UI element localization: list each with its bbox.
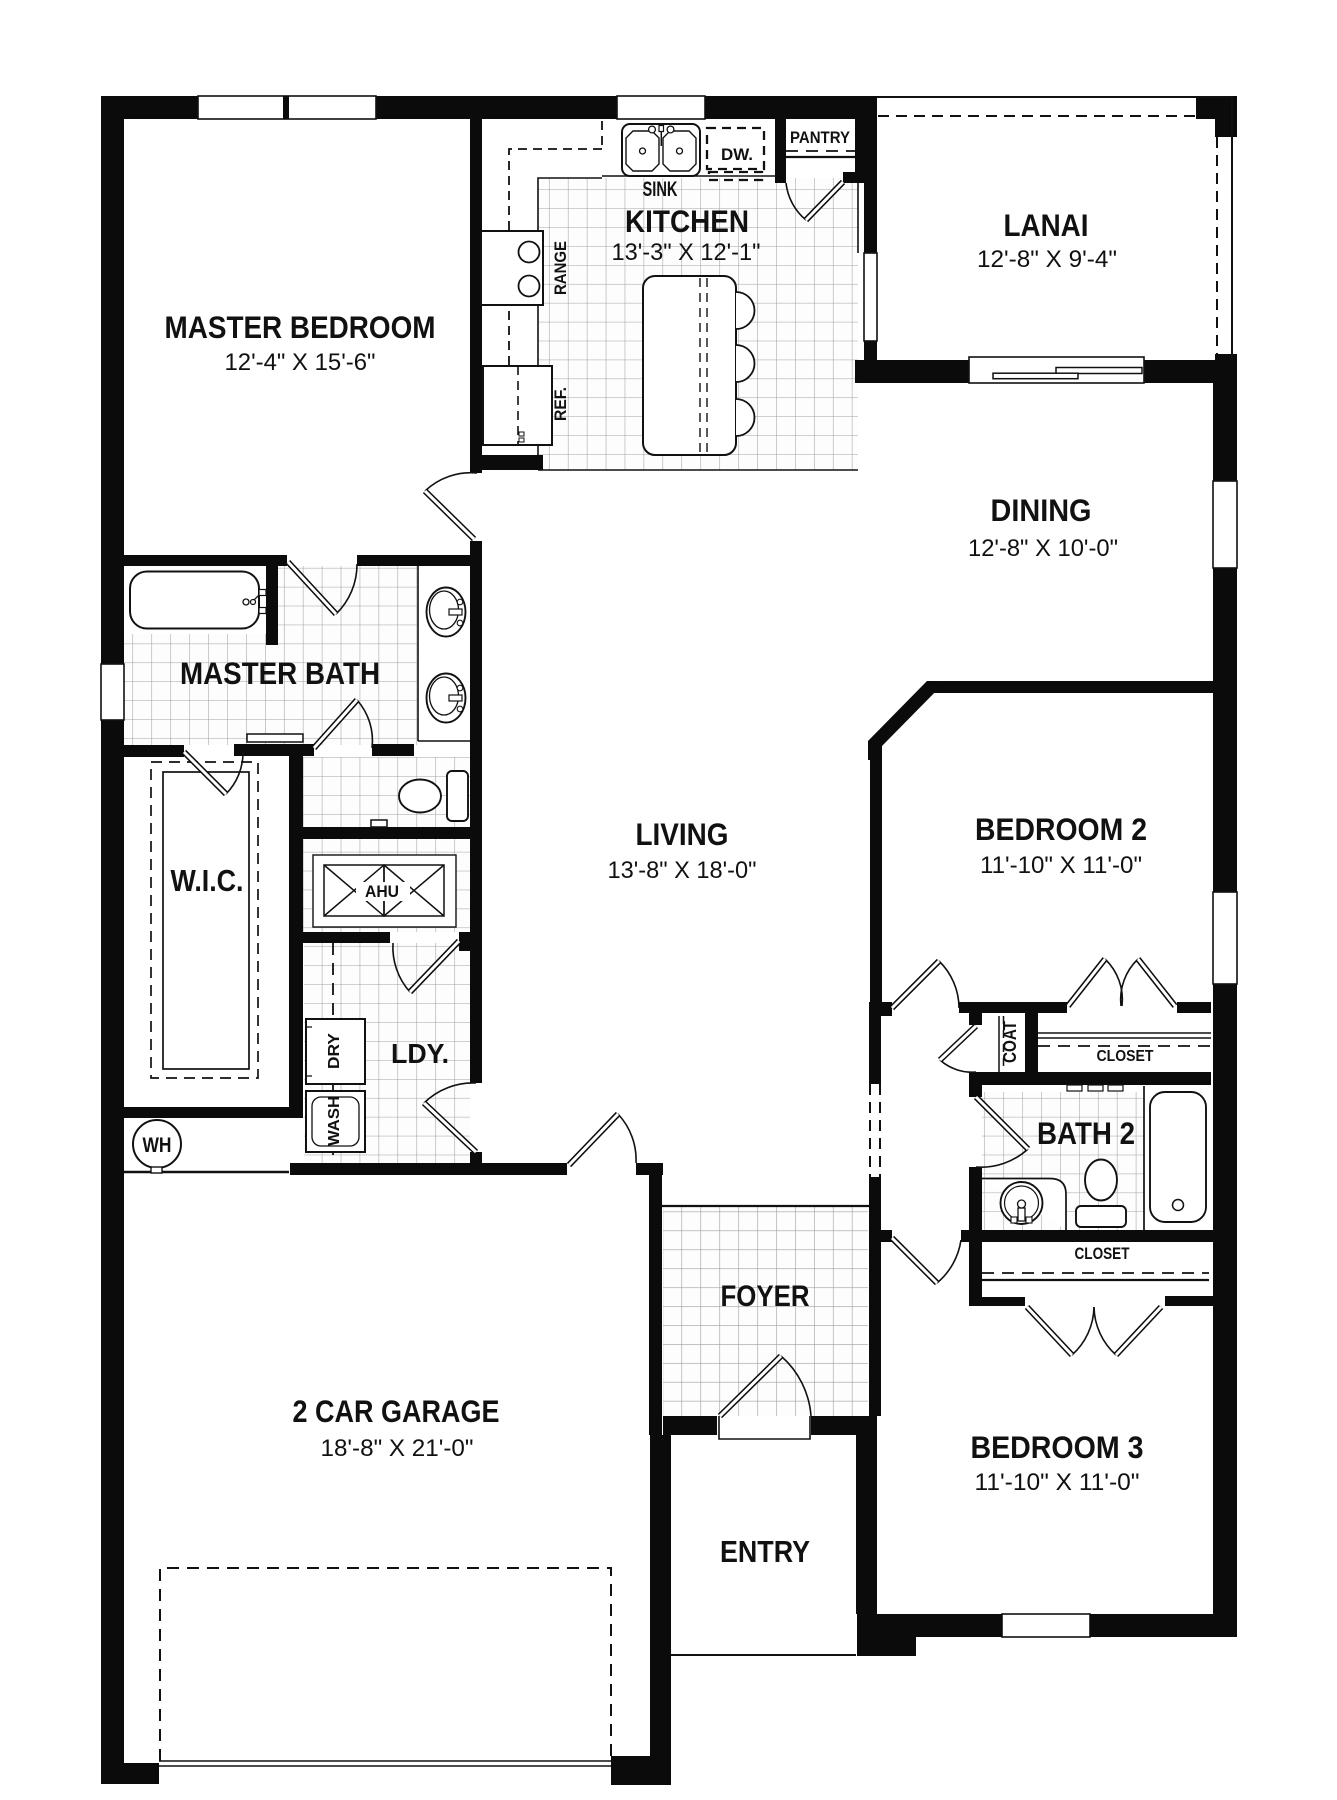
svg-text:BEDROOM 3: BEDROOM 3 xyxy=(971,1429,1144,1465)
svg-text:LDY.: LDY. xyxy=(391,1038,449,1069)
svg-text:SINK: SINK xyxy=(643,178,678,201)
svg-text:MASTER BEDROOM: MASTER BEDROOM xyxy=(165,309,436,345)
svg-text:ENTRY: ENTRY xyxy=(720,1534,810,1569)
svg-text:BATH 2: BATH 2 xyxy=(1037,1115,1135,1151)
svg-text:13'-3" X 12'-1": 13'-3" X 12'-1" xyxy=(612,239,761,266)
svg-text:WASH: WASH xyxy=(326,1096,343,1146)
svg-text:PANTRY: PANTRY xyxy=(790,128,851,147)
svg-text:11'-10" X 11'-0": 11'-10" X 11'-0" xyxy=(975,1469,1140,1496)
svg-text:DW.: DW. xyxy=(721,145,753,164)
svg-text:KITCHEN: KITCHEN xyxy=(625,203,749,239)
svg-text:DRY: DRY xyxy=(326,1033,343,1069)
svg-text:FOYER: FOYER xyxy=(721,1280,810,1313)
svg-text:CLOSET: CLOSET xyxy=(1097,1048,1154,1065)
svg-text:11'-10" X 11'-0": 11'-10" X 11'-0" xyxy=(980,852,1142,879)
svg-text:MASTER BATH: MASTER BATH xyxy=(180,655,380,691)
svg-text:COAT: COAT xyxy=(1000,1021,1020,1063)
svg-text:DINING: DINING xyxy=(991,492,1092,528)
svg-text:BEDROOM 2: BEDROOM 2 xyxy=(975,811,1147,847)
svg-text:REF.: REF. xyxy=(551,387,570,421)
svg-text:13'-8" X 18'-0": 13'-8" X 18'-0" xyxy=(608,857,757,884)
svg-text:12'-4" X 15'-6": 12'-4" X 15'-6" xyxy=(225,349,376,376)
svg-text:WH: WH xyxy=(143,1134,172,1157)
svg-text:18'-8" X 21'-0": 18'-8" X 21'-0" xyxy=(321,1435,474,1462)
svg-text:LIVING: LIVING xyxy=(636,816,729,852)
svg-text:LANAI: LANAI xyxy=(1004,207,1089,243)
svg-text:12'-8" X 10'-0": 12'-8" X 10'-0" xyxy=(968,535,1118,562)
svg-text:W.I.C.: W.I.C. xyxy=(171,864,244,898)
svg-text:CLOSET: CLOSET xyxy=(1075,1245,1130,1263)
svg-text:12'-8" X 9'-4": 12'-8" X 9'-4" xyxy=(977,246,1117,273)
svg-text:2 CAR GARAGE: 2 CAR GARAGE xyxy=(293,1393,500,1429)
svg-text:RANGE: RANGE xyxy=(551,241,570,295)
svg-text:AHU: AHU xyxy=(365,882,399,901)
